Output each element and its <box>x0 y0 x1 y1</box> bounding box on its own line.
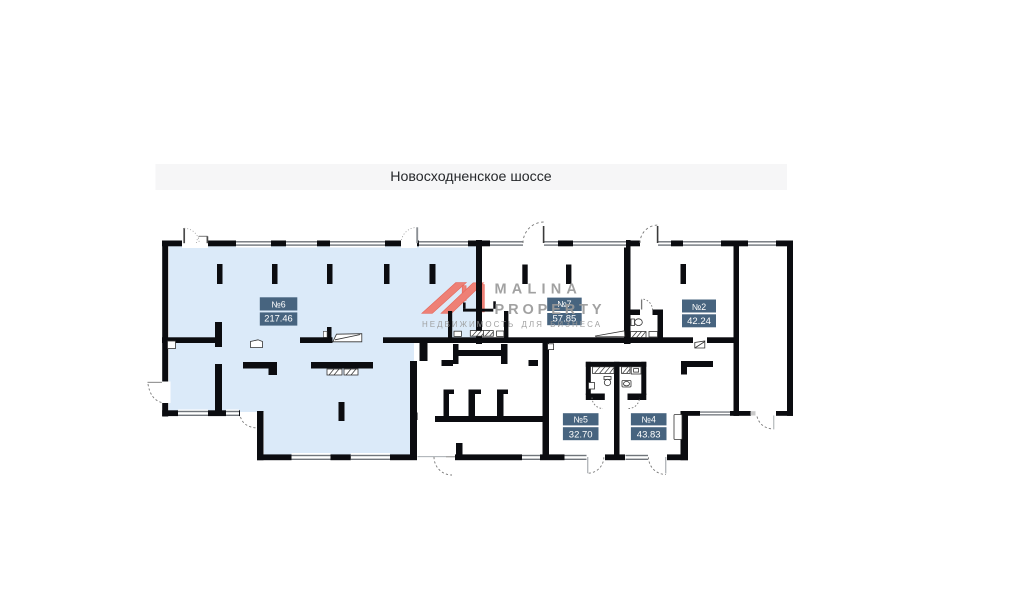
svg-text:№2: №2 <box>692 302 706 312</box>
svg-text:PROPERTY: PROPERTY <box>495 302 606 318</box>
svg-text:32.70: 32.70 <box>569 429 593 440</box>
svg-text:MALINA: MALINA <box>495 282 583 298</box>
svg-text:217.46: 217.46 <box>264 313 292 323</box>
svg-text:Новосходненское шоссе: Новосходненское шоссе <box>390 169 551 185</box>
svg-text:№5: №5 <box>574 415 588 425</box>
svg-text:№6: №6 <box>271 299 285 309</box>
svg-text:43.83: 43.83 <box>637 429 661 440</box>
svg-text:№4: №4 <box>642 415 656 425</box>
svg-text:42.24: 42.24 <box>687 316 711 327</box>
svg-text:НЕДВИЖИМОСТЬ ДЛЯ БИЗНЕСА: НЕДВИЖИМОСТЬ ДЛЯ БИЗНЕСА <box>422 320 602 329</box>
